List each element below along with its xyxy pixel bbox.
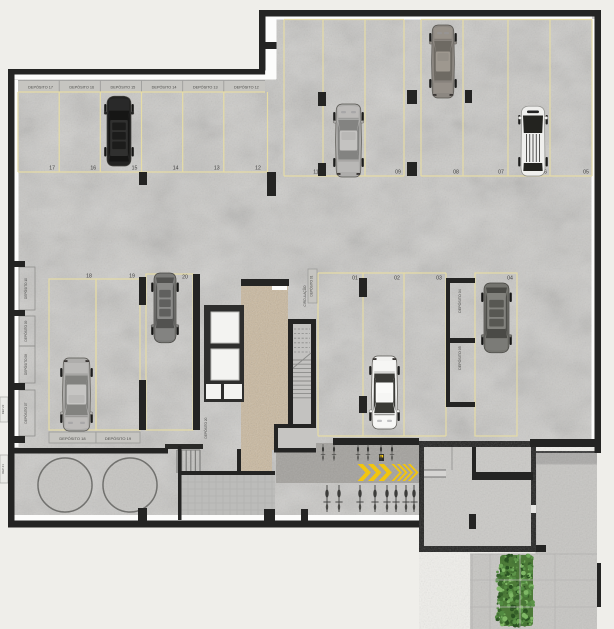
svg-text:14: 14 [173,166,179,172]
svg-text:08: 08 [453,170,459,176]
svg-text:DEPÓSITO 13: DEPÓSITO 13 [193,85,218,90]
svg-text:19: 19 [129,274,135,280]
svg-text:11: 11 [313,170,318,176]
svg-text:07: 07 [498,170,504,176]
svg-text:DEPÓSITO 07: DEPÓSITO 07 [23,402,28,423]
svg-text:02: 02 [394,276,400,282]
svg-text:09: 09 [395,170,401,176]
svg-text:16: 16 [90,166,96,172]
svg-text:DEPÓSITO 12: DEPÓSITO 12 [234,85,259,90]
svg-text:18: 18 [86,274,92,280]
svg-text:DEPÓSITO 08: DEPÓSITO 08 [23,354,28,375]
svg-text:04: 04 [507,276,513,282]
svg-text:DEPÓSITO 14: DEPÓSITO 14 [152,85,177,90]
svg-text:DEPÓSITO 05: DEPÓSITO 05 [457,346,462,370]
svg-text:DEPÓSITO 01: DEPÓSITO 01 [309,275,314,296]
svg-text:20: 20 [182,275,188,281]
svg-text:12: 12 [255,166,261,172]
svg-text:05: 05 [583,170,589,176]
svg-text:17: 17 [49,166,55,172]
svg-text:15: 15 [132,166,138,172]
svg-text:DEPÓSITO 19: DEPÓSITO 19 [105,436,132,441]
svg-text:DEPÓSITO 15: DEPÓSITO 15 [110,85,135,90]
svg-text:CIRCULAÇÃO: CIRCULAÇÃO [302,285,307,306]
svg-text:DEP 22: DEP 22 [1,404,5,414]
svg-text:DEPÓSITO 10: DEPÓSITO 10 [23,278,28,299]
svg-text:DEPÓSITO 18: DEPÓSITO 18 [59,436,86,441]
svg-text:03: 03 [436,276,442,282]
svg-text:DEP 21: DEP 21 [1,464,5,474]
svg-text:DEPÓSITO 16: DEPÓSITO 16 [69,85,94,90]
svg-text:13: 13 [214,166,220,172]
svg-text:DEPÓSITO 09: DEPÓSITO 09 [23,320,28,341]
svg-text:DEPÓSITO 20: DEPÓSITO 20 [203,417,208,438]
svg-text:DEPÓSITO 04: DEPÓSITO 04 [457,289,462,313]
svg-text:DEPÓSITO 17: DEPÓSITO 17 [28,85,53,90]
svg-text:01: 01 [352,276,358,282]
